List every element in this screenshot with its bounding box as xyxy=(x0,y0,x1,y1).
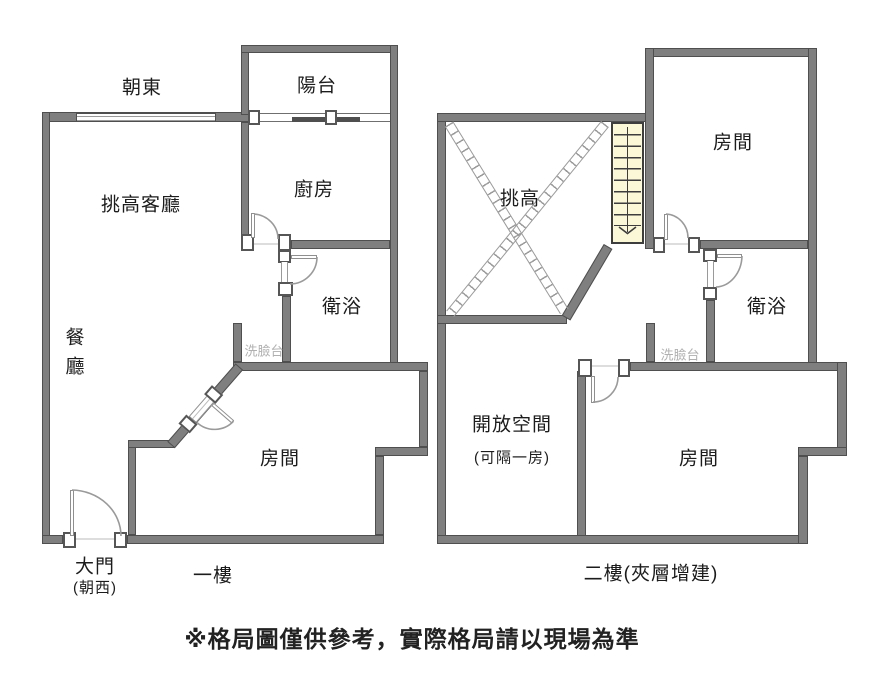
wall xyxy=(437,113,654,122)
label-bedroom-1f: 房間 xyxy=(260,444,300,471)
diagonal-wall xyxy=(562,244,613,321)
wall xyxy=(808,48,817,371)
wall xyxy=(390,45,398,371)
wall xyxy=(837,362,847,456)
main-door-arc xyxy=(72,490,122,537)
label-open-space-note: (可隔一房) xyxy=(474,447,550,468)
bedroom-door-2f-opening xyxy=(592,362,618,371)
wall xyxy=(128,440,136,535)
label-balcony: 陽台 xyxy=(297,71,337,98)
wall xyxy=(646,323,655,362)
window xyxy=(77,112,215,122)
door-post xyxy=(325,110,337,125)
void-cross-brace xyxy=(445,121,569,314)
stairs xyxy=(611,122,644,244)
wall xyxy=(798,447,847,456)
wall xyxy=(42,112,50,544)
label-living-room: 挑高客廳 xyxy=(101,190,181,217)
label-floor2-caption: 二樓(夾層增建) xyxy=(584,559,719,586)
label-bathroom-1f: 衛浴 xyxy=(322,292,362,319)
wall xyxy=(233,323,242,362)
label-washbasin-1f: 洗臉台 xyxy=(244,341,283,360)
door-post xyxy=(703,287,717,300)
wall xyxy=(42,535,63,544)
bedroom-door-1f xyxy=(189,396,214,422)
wall xyxy=(645,48,817,57)
label-dining-room: 餐廳 xyxy=(60,327,87,385)
label-facing-east: 朝東 xyxy=(122,73,162,100)
label-bedroom-2f-top: 房間 xyxy=(713,128,753,155)
bedroom-top-door-arc xyxy=(666,214,690,240)
bathroom-door-frame xyxy=(281,262,288,283)
label-washbasin-2f: 洗臉台 xyxy=(660,345,699,364)
wall xyxy=(419,371,428,447)
wall xyxy=(700,240,808,249)
label-floor1-caption: 一樓 xyxy=(193,561,233,588)
label-void: 挑高 xyxy=(500,184,540,211)
wall xyxy=(291,240,390,249)
kitchen-door-opening xyxy=(254,240,278,249)
wall xyxy=(798,456,808,544)
kitchen-door-arc xyxy=(254,214,281,241)
wall xyxy=(437,113,446,544)
bedroom-door-2f-arc xyxy=(593,377,619,403)
label-main-door-facing: (朝西) xyxy=(73,577,117,598)
label-main-door: 大門 xyxy=(75,552,115,579)
stair-direction-line xyxy=(627,127,629,232)
bathroom-door-arc xyxy=(290,257,318,286)
label-bathroom-2f: 衛浴 xyxy=(747,292,787,319)
wall xyxy=(577,371,586,544)
wall xyxy=(241,122,249,236)
label-bedroom-2f: 房間 xyxy=(679,444,719,471)
stair-down-arrow xyxy=(618,226,638,235)
wall xyxy=(706,300,715,362)
wall xyxy=(645,48,654,249)
wall xyxy=(241,45,398,53)
wall xyxy=(375,447,428,456)
label-open-space: 開放空間 xyxy=(472,410,552,437)
wall xyxy=(241,45,249,115)
wall xyxy=(437,535,808,544)
bedroom-top-door-opening xyxy=(665,240,688,249)
label-kitchen: 廚房 xyxy=(294,175,334,202)
floorplan-image: 朝東 陽台 挑高客廳 廚房 衛浴 洗臉台 餐廳 房間 大門 (朝西) 一樓 xyxy=(0,0,889,685)
door-post xyxy=(618,359,630,377)
door-post xyxy=(578,359,592,377)
wall xyxy=(127,535,384,544)
door-post xyxy=(248,110,260,125)
bathroom-door-arc-2f xyxy=(716,256,743,289)
disclaimer-text: ※格局圖僅供參考，實際格局請以現場為準 xyxy=(184,620,639,654)
bathroom-door-frame-2f xyxy=(707,261,714,288)
wall xyxy=(233,362,428,371)
wall xyxy=(437,315,567,324)
wall xyxy=(375,456,384,535)
